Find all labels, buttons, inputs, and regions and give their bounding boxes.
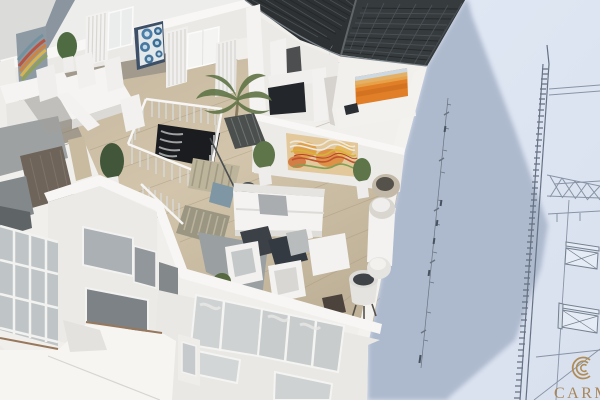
svg-text:CARM: CARM	[554, 385, 600, 400]
